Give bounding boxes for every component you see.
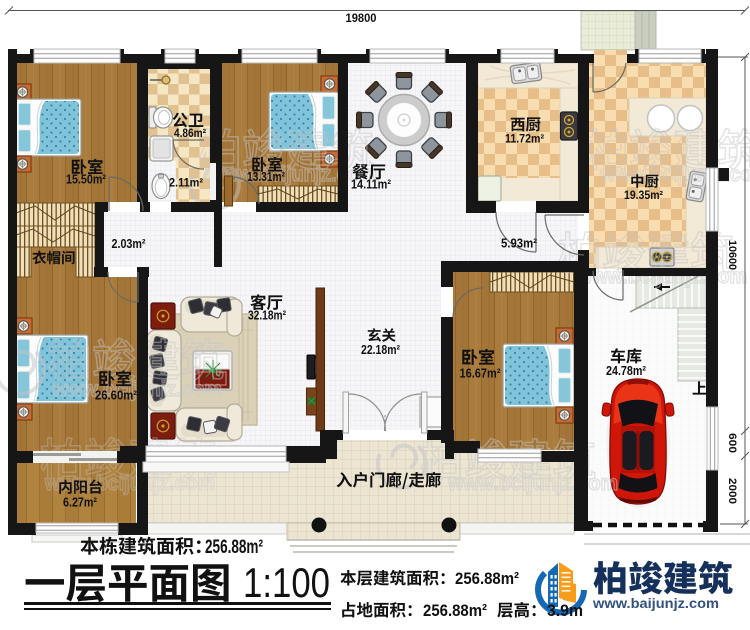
svg-text:10600: 10600: [726, 240, 738, 270]
svg-text:2000: 2000: [726, 478, 738, 504]
svg-text:4.86m²: 4.86m²: [174, 126, 206, 140]
svg-text:19.35m²: 19.35m²: [624, 188, 663, 202]
svg-text:www.bcijunjz.com: www.bcijunjz.com: [447, 472, 618, 495]
svg-text:11.72m²: 11.72m²: [505, 132, 544, 146]
svg-text:2.11m²: 2.11m²: [169, 176, 203, 190]
svg-text:26.60m²: 26.60m²: [95, 389, 137, 403]
svg-text:256.88m²: 256.88m²: [455, 570, 519, 588]
svg-text:6.27m²: 6.27m²: [63, 496, 97, 510]
svg-text:3.9m: 3.9m: [547, 602, 583, 620]
svg-text:15.50m²: 15.50m²: [66, 173, 106, 187]
svg-text:24.78m²: 24.78m²: [606, 364, 646, 378]
svg-text:1:100: 1:100: [243, 559, 330, 606]
svg-text:13.31m²: 13.31m²: [247, 170, 285, 184]
svg-text:2.03m²: 2.03m²: [112, 237, 146, 251]
svg-text:5.93m²: 5.93m²: [501, 237, 537, 251]
svg-text:19800: 19800: [346, 13, 377, 25]
svg-text:16.67m²: 16.67m²: [460, 367, 501, 381]
svg-text:32.18m²: 32.18m²: [248, 309, 286, 323]
svg-text:256.88m²: 256.88m²: [205, 537, 263, 558]
svg-text:600: 600: [726, 433, 738, 453]
svg-text:22.18m²: 22.18m²: [361, 343, 400, 357]
svg-text:14.11m²: 14.11m²: [351, 178, 391, 192]
svg-text:256.88m²: 256.88m²: [423, 602, 487, 620]
svg-text:www.baijunjz.com: www.baijunjz.com: [592, 596, 719, 611]
